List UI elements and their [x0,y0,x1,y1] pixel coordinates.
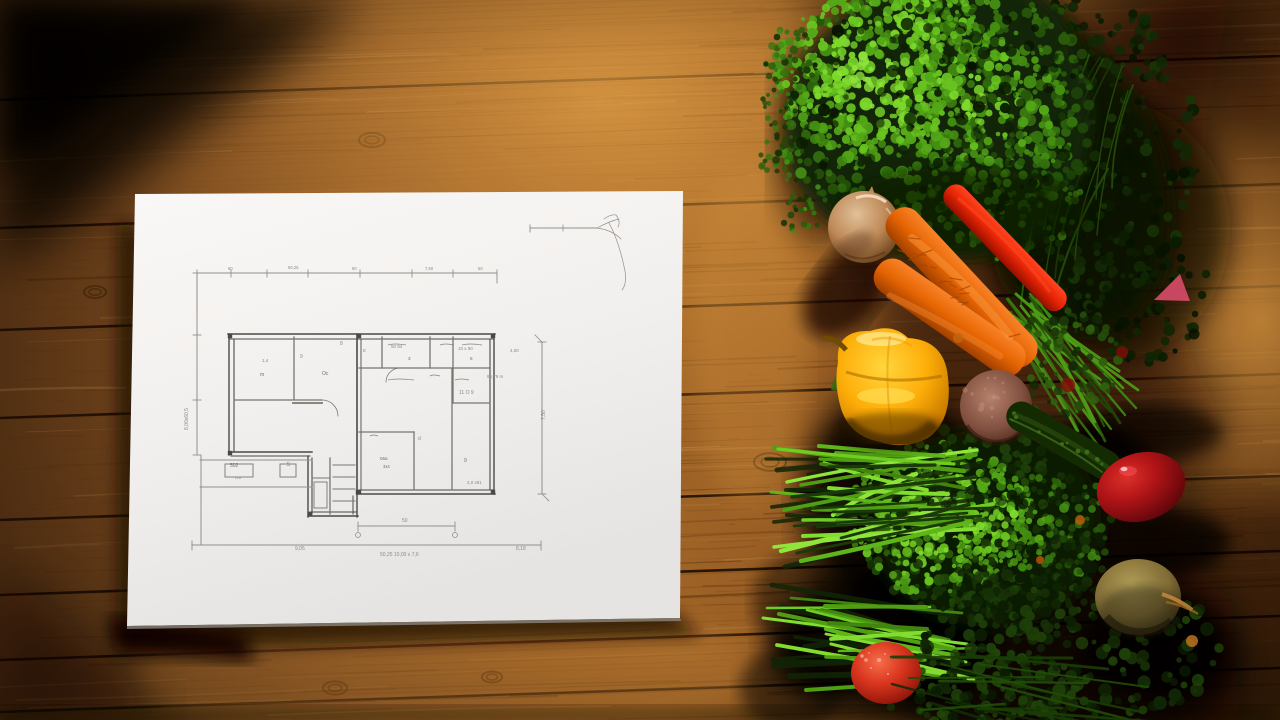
svg-text:60: 60 [228,266,233,271]
svg-text:5: 5 [470,356,473,361]
svg-text:7,50: 7,50 [541,410,547,420]
svg-text:3: 3 [408,356,411,361]
svg-text:8,18: 8,18 [516,546,526,552]
svg-text:9: 9 [300,354,303,360]
svg-text:60: 60 [352,266,357,271]
svg-text:8,00x60,5: 8,00x60,5 [184,408,190,430]
svg-text:E: E [363,348,366,353]
svg-text:50: 50 [478,266,483,271]
svg-text:4,00: 4,00 [510,348,519,353]
svg-text:06a: 06a [380,456,388,461]
svg-text:502: 502 [230,463,239,469]
svg-text:9,05: 9,05 [295,546,305,552]
svg-text:50 94: 50 94 [391,344,403,349]
svg-text:50: 50 [402,518,408,524]
svg-text:nm: nm [235,475,242,480]
svg-text:3x4: 3x4 [383,464,390,469]
svg-text:90,79 m: 90,79 m [487,374,504,379]
svg-text:5: 5 [287,462,290,468]
svg-text:m: m [260,372,264,378]
svg-text:1,4: 1,4 [262,358,269,363]
svg-text:50,25 10,00 x 7,6: 50,25 10,00 x 7,6 [380,552,419,558]
svg-text:8: 8 [340,341,343,347]
svg-text:11 O 9: 11 O 9 [459,390,474,396]
svg-text:Oc: Oc [322,371,329,377]
svg-text:7,50: 7,50 [425,266,434,271]
svg-text:10 x 90: 10 x 90 [458,346,473,351]
svg-text:4,0 x91: 4,0 x91 [467,480,482,485]
svg-text:d: d [418,436,421,442]
svg-text:9: 9 [464,458,467,464]
svg-text:50,25: 50,25 [288,265,299,270]
